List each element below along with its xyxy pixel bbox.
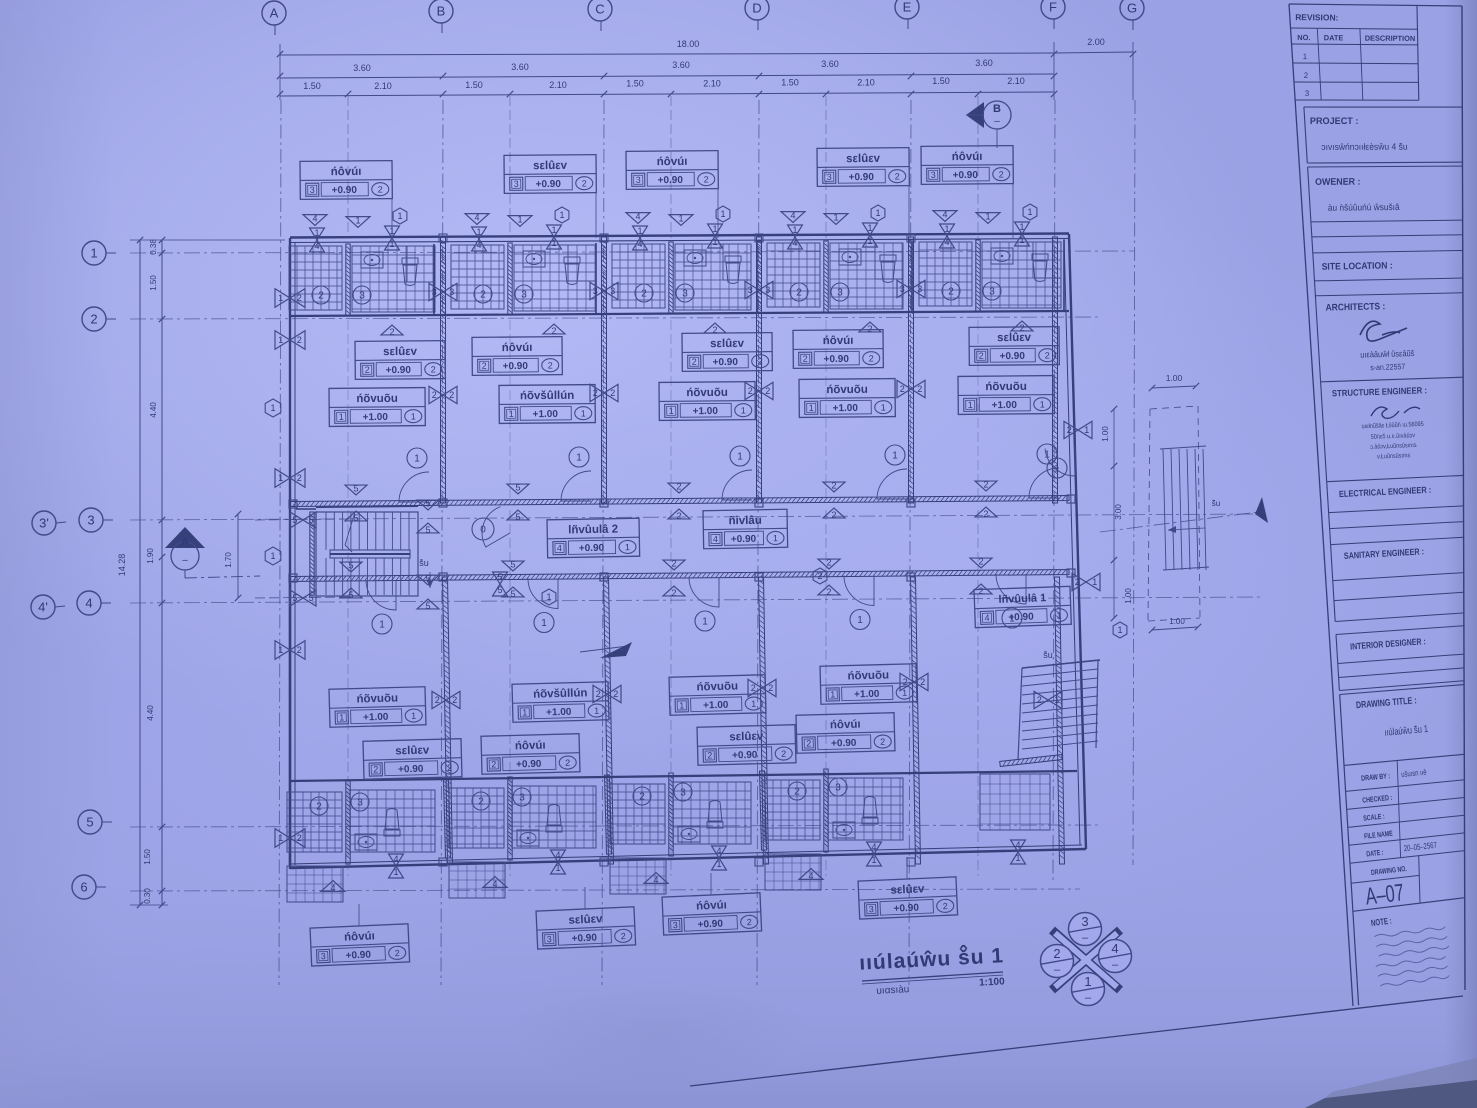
- svg-text:+0.90: +0.90: [398, 764, 424, 776]
- svg-text:2: 2: [948, 287, 954, 298]
- svg-text:1: 1: [902, 688, 907, 698]
- svg-text:2: 2: [378, 184, 383, 194]
- svg-text:NO.: NO.: [1297, 33, 1310, 42]
- svg-text:B: B: [993, 103, 1001, 115]
- svg-text:2: 2: [676, 511, 681, 521]
- svg-text:2.10: 2.10: [1007, 76, 1025, 86]
- svg-text:2: 2: [999, 169, 1004, 179]
- svg-text:1: 1: [830, 689, 835, 699]
- svg-text:3: 3: [514, 179, 519, 189]
- svg-text:+1.00: +1.00: [693, 406, 719, 417]
- svg-text:+0.90: +0.90: [332, 185, 358, 196]
- svg-text:+1.00: +1.00: [854, 689, 880, 701]
- svg-text:5: 5: [353, 484, 358, 494]
- svg-text:4: 4: [792, 238, 797, 248]
- svg-text:2.10: 2.10: [374, 81, 392, 91]
- svg-text:uıεàâuŵł ûsεâũš: uıεàâuŵł ûsεâũš: [1360, 349, 1414, 360]
- svg-text:ńôvúı: ńôvúı: [331, 166, 362, 178]
- svg-text:1: 1: [339, 712, 344, 722]
- svg-text:3: 3: [87, 513, 94, 528]
- svg-text:3: 3: [449, 287, 454, 297]
- svg-text:4: 4: [984, 613, 989, 623]
- svg-text:SITE LOCATION :: SITE LOCATION :: [1322, 260, 1393, 272]
- svg-text:6: 6: [80, 880, 87, 895]
- svg-text:4: 4: [474, 213, 479, 223]
- svg-text:1: 1: [875, 208, 880, 218]
- svg-text:2: 2: [613, 689, 618, 699]
- svg-text:3: 3: [519, 793, 525, 804]
- svg-text:3: 3: [917, 284, 922, 294]
- svg-text:ńõvuõu: ńõvuõu: [356, 393, 398, 405]
- svg-text:1: 1: [720, 209, 725, 219]
- svg-text:1: 1: [871, 855, 876, 865]
- svg-text:1: 1: [355, 216, 360, 226]
- svg-text:4: 4: [85, 596, 92, 611]
- svg-text:4: 4: [716, 846, 721, 856]
- svg-text:1: 1: [1303, 52, 1308, 61]
- svg-text:sεlûεv: sεlûεv: [997, 332, 1032, 344]
- svg-text:2: 2: [565, 758, 570, 768]
- svg-text:4.40: 4.40: [149, 402, 158, 418]
- svg-text:1: 1: [546, 592, 551, 602]
- svg-text:1: 1: [985, 212, 990, 222]
- svg-text:2: 2: [880, 737, 885, 747]
- svg-text:sεlûεv: sεlûεv: [533, 160, 568, 172]
- svg-text:2: 2: [671, 559, 676, 569]
- svg-text:0.30: 0.30: [143, 888, 152, 904]
- svg-text:1: 1: [278, 645, 283, 655]
- svg-text:DATE: DATE: [1324, 33, 1344, 42]
- svg-text:3: 3: [931, 170, 936, 180]
- svg-text:2: 2: [707, 750, 712, 760]
- svg-text:1: 1: [389, 239, 394, 249]
- svg-text:+1.00: +1.00: [992, 400, 1018, 411]
- svg-text:ńôvúı: ńôvúı: [952, 151, 983, 163]
- svg-text:2: 2: [983, 509, 988, 519]
- svg-text:sεlûεv: sεlûεv: [395, 745, 430, 758]
- svg-text:A–07: A–07: [1364, 879, 1405, 910]
- svg-text:REVISION:: REVISION:: [1295, 12, 1338, 22]
- svg-text:2: 2: [831, 510, 836, 520]
- svg-text:1: 1: [551, 238, 556, 248]
- svg-text:2: 2: [639, 792, 645, 803]
- svg-text:ńôvúı: ńôvúı: [696, 899, 727, 912]
- svg-text:2: 2: [365, 365, 370, 375]
- svg-text:2: 2: [620, 931, 625, 941]
- svg-text:s-an.22557: s-an.22557: [1370, 362, 1405, 373]
- svg-text:+0.90: +0.90: [1008, 612, 1034, 624]
- svg-text:3': 3': [39, 516, 49, 531]
- svg-text:5: 5: [86, 815, 93, 830]
- svg-text:2: 2: [318, 291, 324, 302]
- svg-text:2: 2: [373, 764, 378, 774]
- svg-text:C: C: [595, 2, 604, 17]
- svg-text:1: 1: [314, 228, 319, 238]
- svg-text:1: 1: [270, 551, 275, 561]
- svg-text:2: 2: [748, 386, 753, 396]
- svg-text:2: 2: [826, 558, 831, 568]
- svg-text:2: 2: [596, 689, 601, 699]
- svg-text:2: 2: [551, 326, 556, 336]
- svg-text:1: 1: [411, 411, 416, 421]
- svg-text:+0.90: +0.90: [386, 365, 412, 376]
- svg-text:4: 4: [1111, 941, 1118, 956]
- svg-text:2: 2: [297, 335, 302, 345]
- svg-text:2: 2: [831, 481, 836, 491]
- svg-text:2: 2: [389, 327, 394, 337]
- svg-text:2: 2: [746, 917, 751, 927]
- svg-text:2: 2: [692, 357, 697, 367]
- svg-text:2: 2: [297, 473, 302, 483]
- svg-text:2: 2: [671, 588, 676, 598]
- svg-text:+0.90: +0.90: [953, 170, 979, 181]
- svg-text:ńôvúı: ńôvúı: [502, 342, 533, 354]
- svg-text:2: 2: [316, 802, 322, 813]
- svg-text:+0.90: +0.90: [536, 179, 562, 190]
- svg-text:1: 1: [716, 859, 721, 869]
- svg-text:+1.00: +1.00: [363, 412, 389, 423]
- svg-text:1.50: 1.50: [932, 76, 950, 86]
- svg-text:lñvûulâ 2: lñvûulâ 2: [568, 524, 618, 537]
- svg-text:4: 4: [790, 211, 795, 221]
- svg-text:+0.90: +0.90: [893, 902, 919, 914]
- svg-text:1: 1: [637, 226, 642, 236]
- svg-text:2: 2: [297, 645, 302, 655]
- svg-text:3: 3: [748, 285, 753, 295]
- svg-text:3: 3: [835, 783, 841, 794]
- svg-text:2: 2: [900, 384, 905, 394]
- svg-text:ńõvuõu: ńõvuõu: [985, 381, 1027, 393]
- svg-text:1: 1: [625, 542, 630, 552]
- svg-text:3: 3: [359, 291, 365, 302]
- svg-text:sεlûεv: sεlûεv: [710, 338, 745, 350]
- svg-text:1: 1: [411, 711, 416, 721]
- svg-text:2: 2: [90, 312, 97, 327]
- svg-text:2: 2: [452, 695, 457, 705]
- svg-text:1.90: 1.90: [146, 548, 155, 564]
- svg-text:2: 2: [435, 695, 440, 705]
- svg-text:2.00: 2.00: [1087, 37, 1105, 47]
- svg-text:–: –: [182, 555, 188, 566]
- svg-text:2: 2: [867, 324, 872, 334]
- svg-text:sεlûεv: sεlûεv: [890, 883, 925, 896]
- svg-text:0.38: 0.38: [149, 239, 158, 255]
- svg-text:2.10: 2.10: [549, 80, 567, 90]
- svg-text:–: –: [1112, 959, 1119, 971]
- svg-text:1: 1: [833, 213, 838, 223]
- svg-text:1: 1: [712, 224, 717, 234]
- svg-text:3.00: 3.00: [1114, 504, 1123, 520]
- svg-text:2: 2: [781, 749, 786, 759]
- svg-text:4.40: 4.40: [146, 705, 155, 721]
- svg-text:1: 1: [678, 214, 683, 224]
- svg-text:1.00: 1.00: [1124, 588, 1133, 604]
- svg-text:1: 1: [1015, 853, 1020, 863]
- svg-text:1: 1: [278, 833, 283, 843]
- svg-text:ñivlâu: ñivlâu: [728, 515, 761, 528]
- svg-text:3.60: 3.60: [511, 62, 529, 72]
- svg-text:1: 1: [944, 224, 949, 234]
- svg-text:š̂u: š̂u: [419, 558, 429, 568]
- svg-text:5: 5: [309, 593, 314, 603]
- svg-text:1: 1: [414, 454, 420, 465]
- svg-text:1: 1: [857, 615, 863, 626]
- svg-text:4: 4: [393, 854, 398, 864]
- svg-text:1: 1: [393, 867, 398, 877]
- svg-text:2: 2: [394, 948, 399, 958]
- svg-text:1: 1: [741, 405, 746, 415]
- svg-text:4': 4': [38, 600, 48, 615]
- svg-text:4: 4: [713, 534, 718, 544]
- svg-text:5: 5: [497, 585, 502, 595]
- svg-text:3.60: 3.60: [353, 63, 371, 73]
- svg-text:+0.90: +0.90: [1000, 351, 1026, 362]
- svg-text:1: 1: [1054, 695, 1059, 705]
- svg-text:2: 2: [751, 683, 756, 693]
- svg-text:2: 2: [641, 289, 647, 300]
- svg-text:1: 1: [1092, 577, 1097, 587]
- svg-text:ńõvuõu: ńõvuõu: [686, 387, 728, 399]
- svg-text:2: 2: [895, 171, 900, 181]
- svg-text:1: 1: [379, 620, 385, 631]
- svg-text:1: 1: [773, 533, 778, 543]
- svg-text:4: 4: [944, 237, 949, 247]
- svg-text:+0.90: +0.90: [824, 354, 850, 365]
- svg-text:1: 1: [397, 211, 402, 221]
- svg-text:1.00: 1.00: [1166, 373, 1183, 383]
- svg-text:3: 3: [593, 286, 598, 296]
- svg-text:1: 1: [968, 400, 973, 410]
- svg-text:1: 1: [1117, 625, 1122, 635]
- svg-text:ARCHITECTS :: ARCHITECTS :: [1325, 301, 1385, 313]
- svg-text:1.50: 1.50: [149, 275, 158, 291]
- svg-text:+0.90: +0.90: [732, 750, 758, 762]
- svg-text:+0.90: +0.90: [697, 918, 723, 930]
- svg-text:5: 5: [425, 525, 430, 535]
- svg-text:1.50: 1.50: [626, 79, 644, 89]
- svg-text:1: 1: [476, 227, 481, 237]
- svg-text:+0.90: +0.90: [579, 543, 605, 554]
- svg-text:ńôvúı: ńôvúı: [515, 740, 546, 753]
- svg-text:18.00: 18.00: [677, 39, 700, 49]
- svg-text:ńõvšûllún: ńõvšûllún: [520, 390, 574, 402]
- svg-text:3: 3: [765, 285, 770, 295]
- svg-text:2: 2: [942, 901, 947, 911]
- svg-text:ńôvúı: ńôvúı: [823, 335, 854, 347]
- svg-text:sεlûεv: sεlûεv: [568, 913, 603, 926]
- svg-text:4: 4: [476, 240, 481, 250]
- svg-text:2: 2: [297, 293, 302, 303]
- svg-text:2: 2: [794, 787, 800, 798]
- svg-text:ɔıvısŵńnɔııłεèsŵu 4 š̂u: ɔıvısŵńnɔııłεèsŵu 4 š̂u: [1321, 141, 1407, 152]
- svg-text:5: 5: [425, 499, 430, 509]
- svg-text:3: 3: [1305, 89, 1310, 98]
- svg-text:A: A: [270, 6, 279, 21]
- svg-text:1: 1: [581, 408, 586, 418]
- svg-text:2: 2: [1037, 695, 1042, 705]
- svg-text:+0.90: +0.90: [849, 172, 875, 183]
- svg-text:1: 1: [1040, 399, 1045, 409]
- svg-text:1.50: 1.50: [303, 81, 321, 91]
- svg-text:uıαsıàu: uıαsıàu: [876, 984, 910, 997]
- svg-text:2: 2: [593, 388, 598, 398]
- svg-text:lñvûulâ 1: lñvûulâ 1: [998, 592, 1046, 606]
- svg-text:3: 3: [547, 934, 552, 944]
- svg-text:1.50: 1.50: [781, 77, 799, 87]
- svg-text:1: 1: [1054, 464, 1060, 475]
- svg-text:+1.00: +1.00: [363, 712, 389, 724]
- svg-text:2: 2: [979, 351, 984, 361]
- svg-text:1: 1: [509, 409, 514, 419]
- svg-text:A: A: [181, 536, 189, 548]
- svg-text:ńôvúı: ńôvúı: [657, 156, 688, 168]
- svg-text:3: 3: [610, 286, 615, 296]
- svg-text:2: 2: [480, 290, 486, 301]
- svg-text:2: 2: [582, 178, 587, 188]
- svg-text:ńõvuõu: ńõvuõu: [356, 692, 398, 705]
- svg-text:2: 2: [1045, 350, 1050, 360]
- svg-text:+0.90: +0.90: [571, 932, 597, 944]
- svg-text:3: 3: [869, 904, 874, 914]
- svg-text:1.00: 1.00: [1169, 617, 1185, 626]
- svg-text:1: 1: [576, 453, 582, 464]
- svg-text:1: 1: [555, 863, 560, 873]
- svg-text:5: 5: [425, 601, 430, 611]
- svg-text:2: 2: [978, 586, 983, 596]
- svg-text:3: 3: [827, 172, 832, 182]
- svg-text:PROJECT :: PROJECT :: [1310, 116, 1359, 126]
- svg-text:1: 1: [867, 236, 872, 246]
- svg-text:2: 2: [917, 384, 922, 394]
- svg-text:1.50: 1.50: [143, 849, 152, 865]
- svg-text:š̂u: š̂u: [1212, 499, 1221, 508]
- svg-text:4: 4: [492, 879, 497, 889]
- svg-text:5: 5: [510, 560, 515, 570]
- svg-text:1: 1: [737, 452, 743, 463]
- svg-text:2: 2: [826, 587, 831, 597]
- svg-text:+1.00: +1.00: [833, 403, 859, 414]
- svg-text:1: 1: [339, 412, 344, 422]
- svg-text:2: 2: [676, 482, 681, 492]
- svg-text:2: 2: [548, 360, 553, 370]
- svg-text:3: 3: [682, 289, 688, 300]
- svg-text:2: 2: [903, 677, 908, 687]
- svg-text:2: 2: [1067, 425, 1072, 435]
- svg-text:2: 2: [431, 364, 436, 374]
- svg-text:1: 1: [892, 451, 898, 462]
- svg-text:–: –: [994, 116, 1000, 127]
- svg-text:1: 1: [1019, 235, 1024, 245]
- svg-text:2: 2: [806, 738, 811, 748]
- svg-text:3: 3: [1081, 914, 1088, 929]
- svg-text:OWENER :: OWENER :: [1315, 176, 1360, 187]
- svg-text:+0.90: +0.90: [503, 361, 529, 372]
- svg-text:2: 2: [817, 571, 822, 581]
- svg-text:2: 2: [478, 797, 484, 808]
- svg-text:2: 2: [765, 386, 770, 396]
- svg-text:4: 4: [312, 214, 317, 224]
- svg-text:2: 2: [432, 390, 437, 400]
- svg-text:2.10: 2.10: [857, 77, 875, 87]
- svg-text:4: 4: [653, 875, 658, 885]
- svg-text:sεlûεv: sεlûεv: [383, 346, 418, 358]
- svg-text:2: 2: [1053, 946, 1060, 961]
- svg-text:2: 2: [803, 354, 808, 364]
- svg-text:+0.90: +0.90: [713, 357, 739, 368]
- svg-text:1: 1: [809, 403, 814, 413]
- svg-text:2.10: 2.10: [703, 79, 721, 89]
- svg-text:2: 2: [1075, 577, 1080, 587]
- svg-text:+0.90: +0.90: [731, 534, 757, 545]
- svg-text:2: 2: [610, 388, 615, 398]
- svg-text:E: E: [903, 0, 912, 15]
- svg-text:4: 4: [330, 883, 335, 893]
- svg-text:5: 5: [515, 483, 520, 493]
- svg-text:1: 1: [278, 473, 283, 483]
- svg-text:1: 1: [669, 406, 674, 416]
- svg-text:1: 1: [1084, 974, 1091, 989]
- svg-text:2: 2: [983, 480, 988, 490]
- svg-text:+0.90: +0.90: [345, 949, 371, 961]
- svg-text:1: 1: [1019, 222, 1024, 232]
- svg-text:3: 3: [357, 798, 363, 809]
- svg-text:1: 1: [389, 226, 394, 236]
- svg-text:5: 5: [292, 593, 297, 603]
- svg-text:5: 5: [425, 574, 430, 584]
- svg-text:ńõvuõu: ńõvuõu: [847, 669, 889, 682]
- svg-text:4: 4: [635, 212, 640, 222]
- svg-text:5: 5: [497, 572, 502, 582]
- svg-text:1.70: 1.70: [224, 552, 233, 568]
- svg-text:3: 3: [310, 185, 315, 195]
- svg-text:D: D: [752, 1, 761, 16]
- svg-text:2: 2: [491, 759, 496, 769]
- svg-text:5: 5: [309, 515, 314, 525]
- svg-text:+1.00: +1.00: [533, 409, 559, 420]
- svg-text:1: 1: [1084, 425, 1089, 435]
- svg-text:ńõvuõu: ńõvuõu: [696, 680, 738, 693]
- svg-text:sεlûεv: sεlûεv: [846, 153, 881, 165]
- svg-text:1: 1: [270, 403, 275, 413]
- svg-text:2: 2: [920, 677, 925, 687]
- svg-text:1: 1: [278, 293, 283, 303]
- svg-text:–: –: [1054, 964, 1061, 976]
- svg-text:3: 3: [321, 951, 326, 961]
- svg-text:4: 4: [808, 871, 813, 881]
- svg-text:+1.00: +1.00: [703, 700, 729, 712]
- svg-text:1: 1: [278, 335, 283, 345]
- svg-text:1:100: 1:100: [979, 976, 1006, 988]
- svg-text:3: 3: [521, 290, 527, 301]
- svg-text:3: 3: [680, 788, 686, 799]
- svg-text:2: 2: [869, 353, 874, 363]
- svg-text:1: 1: [517, 215, 522, 225]
- svg-text:1: 1: [751, 699, 756, 709]
- svg-text:4: 4: [557, 543, 562, 553]
- svg-text:ńõvuõu: ńõvuõu: [826, 384, 868, 396]
- svg-text:3: 3: [432, 287, 437, 297]
- svg-text:1: 1: [679, 700, 684, 710]
- svg-text:14.28: 14.28: [117, 554, 127, 577]
- svg-text:3: 3: [636, 175, 641, 185]
- svg-text:1: 1: [881, 402, 886, 412]
- svg-text:–: –: [1085, 992, 1092, 1004]
- svg-text:1.00: 1.00: [1101, 426, 1110, 442]
- svg-text:ńôvúı: ńôvúı: [344, 930, 375, 943]
- svg-text:3: 3: [989, 287, 995, 298]
- svg-text:3: 3: [837, 288, 843, 299]
- svg-text:G: G: [1127, 1, 1137, 16]
